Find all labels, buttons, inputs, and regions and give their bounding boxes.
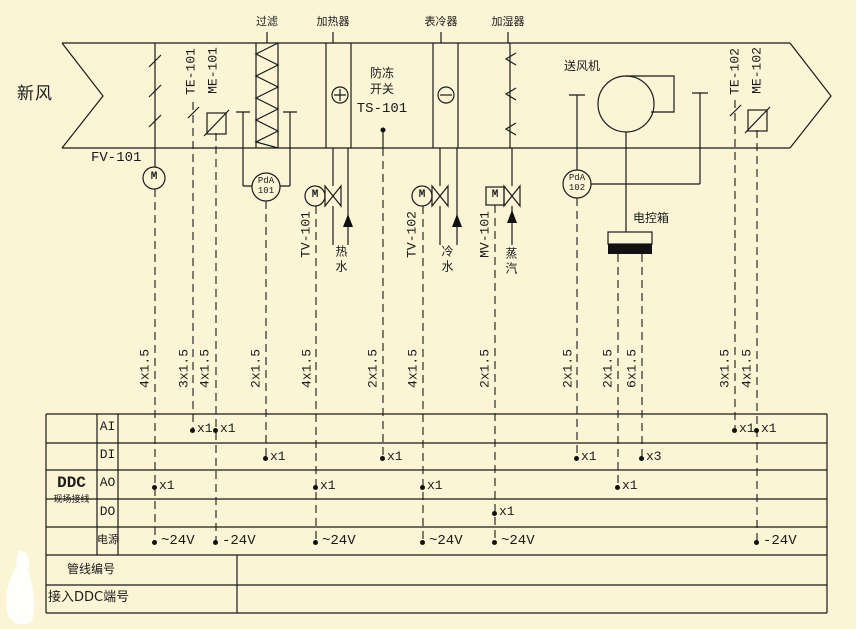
power-label: ~24V: [322, 533, 356, 549]
pipe-medium-label: 蒸汽: [499, 247, 517, 303]
wire-terminal-dot: [213, 540, 218, 545]
io-count-label: x1: [220, 422, 236, 437]
pipe-medium-label: 热水: [329, 245, 347, 301]
motor-letter: M: [146, 171, 162, 184]
pipe-medium-label: 冷水: [435, 245, 453, 301]
pda-gauge-text: 102: [562, 183, 592, 193]
freeze-stat-tag: TS-101: [356, 101, 408, 117]
ddc-group-label: DDC: [46, 474, 97, 492]
power-label: -24V: [222, 533, 256, 549]
wire-terminal-dot: [190, 428, 195, 433]
ddc-table-grid: [46, 414, 827, 613]
io-count-label: x1: [622, 479, 638, 494]
power-label: ~24V: [161, 533, 195, 549]
freeze-stat-line2: 开关: [358, 83, 406, 97]
power-label: ~24V: [501, 533, 535, 549]
motor-letter: M: [487, 189, 503, 202]
wire-terminal-dot: [313, 540, 318, 545]
cable-size-label: 4x1.5: [139, 341, 154, 395]
duct-section-label: 加湿器: [476, 16, 540, 29]
wire-terminal-dot: [420, 540, 425, 545]
scan-artifact-blob: [6, 550, 34, 624]
io-count-label: x1: [739, 422, 755, 437]
pda-gauge-text: 101: [251, 186, 281, 196]
control-box-fill: [608, 244, 652, 254]
equipment-tag: MV-101: [479, 202, 494, 266]
io-count-label: x1: [270, 450, 286, 465]
pda-gauge-text: PdA: [562, 173, 592, 183]
io-count-label: x1: [387, 450, 403, 465]
ddc-group-sublabel: 现场接线: [44, 495, 99, 505]
cable-size-label: 2x1.5: [602, 341, 617, 395]
humidifier-symbol: [506, 43, 516, 148]
mv101-valve-icon: [504, 186, 520, 206]
cable-size-label: 4x1.5: [407, 341, 422, 395]
tv101-valve-icon: [325, 186, 341, 206]
cable-size-label: 6x1.5: [626, 341, 641, 395]
equipment-tag: TV-101: [300, 202, 315, 266]
wire-terminal-dot: [152, 485, 157, 490]
plus-icon: [334, 89, 346, 101]
equipment-tag: TE-101: [185, 39, 200, 103]
wire-terminal-dot: [492, 540, 497, 545]
cable-size-label: 4x1.5: [199, 341, 214, 395]
io-count-label: x3: [646, 450, 662, 465]
io-count-label: x1: [427, 479, 443, 494]
cable-size-label: 4x1.5: [741, 341, 756, 395]
wire-terminal-dot: [313, 485, 318, 490]
freeze-stat-line1: 防冻: [358, 67, 406, 81]
flow-arrow-icon: [507, 210, 517, 223]
wire-terminal-dot: [492, 511, 497, 516]
io-count-label: x1: [320, 479, 336, 494]
cable-size-label: 2x1.5: [250, 341, 265, 395]
damper-tag: FV-101: [91, 150, 141, 166]
cable-size-label: 2x1.5: [479, 341, 494, 395]
cable-size-label: 3x1.5: [178, 341, 193, 395]
equipment-tag: TE-102: [729, 39, 744, 103]
cable-size-label: 3x1.5: [719, 341, 734, 395]
wire-terminal-dot: [213, 428, 218, 433]
equipment-tag: ME-102: [751, 38, 766, 102]
wire-terminal-dot: [639, 456, 644, 461]
flow-arrow-icon: [452, 214, 462, 227]
wire-terminal-dot: [380, 456, 385, 461]
power-label: ~24V: [429, 533, 463, 549]
wire-terminal-dot: [420, 485, 425, 490]
wire-terminal-dot: [574, 456, 579, 461]
io-count-label: x1: [499, 505, 515, 520]
hvac-ddc-schematic: 新风 FV-101 送风机 电控箱 防冻 开关 TS-101 DDC 现场接线 …: [0, 0, 856, 629]
control-box-label: 电控箱: [633, 212, 669, 226]
wire-terminal-dot: [152, 540, 157, 545]
power-label: -24V: [763, 533, 797, 549]
cable-size-label: 2x1.5: [562, 341, 577, 395]
io-count-label: x1: [197, 422, 213, 437]
io-row-label: DI: [97, 448, 118, 463]
io-count-label: x1: [761, 422, 777, 437]
fresh-air-label: 新风: [17, 85, 53, 105]
fan-icon: [598, 76, 654, 132]
wire-terminal-dot: [263, 456, 268, 461]
io-count-label: x1: [581, 450, 597, 465]
io-row-label: 电源: [97, 534, 118, 547]
io-row-label: AI: [97, 420, 118, 435]
io-row-label: AO: [97, 476, 118, 491]
equipment-tag: ME-101: [207, 38, 222, 102]
row-label-ddc-terminal-no: 接入DDC端号: [48, 591, 129, 606]
duct-section-label: 加热器: [301, 16, 365, 29]
control-wires: [155, 100, 757, 542]
wire-terminal-dot: [732, 428, 737, 433]
flow-arrow-icon: [343, 214, 353, 227]
io-row-label: DO: [97, 505, 118, 520]
wire-terminal-dot: [754, 540, 759, 545]
tv102-valve-icon: [432, 186, 448, 206]
supply-fan-label: 送风机: [564, 60, 600, 74]
wire-terminal-dot: [615, 485, 620, 490]
duct-section-label: 表冷器: [409, 16, 473, 29]
motor-letter: M: [414, 189, 430, 202]
io-count-label: x1: [159, 479, 175, 494]
wire-terminal-dot: [754, 428, 759, 433]
ts101-probe-dot: [381, 128, 386, 133]
row-label-conduit-no: 管线编号: [55, 563, 127, 577]
control-box-icon: [608, 232, 652, 244]
pda-gauge-text: PdA: [251, 176, 281, 186]
equipment-tag: TV-102: [406, 202, 421, 266]
motor-letter: M: [307, 189, 323, 202]
cable-size-label: 2x1.5: [367, 341, 382, 395]
duct-section-label: 过滤: [235, 16, 299, 29]
cable-size-label: 4x1.5: [301, 341, 316, 395]
